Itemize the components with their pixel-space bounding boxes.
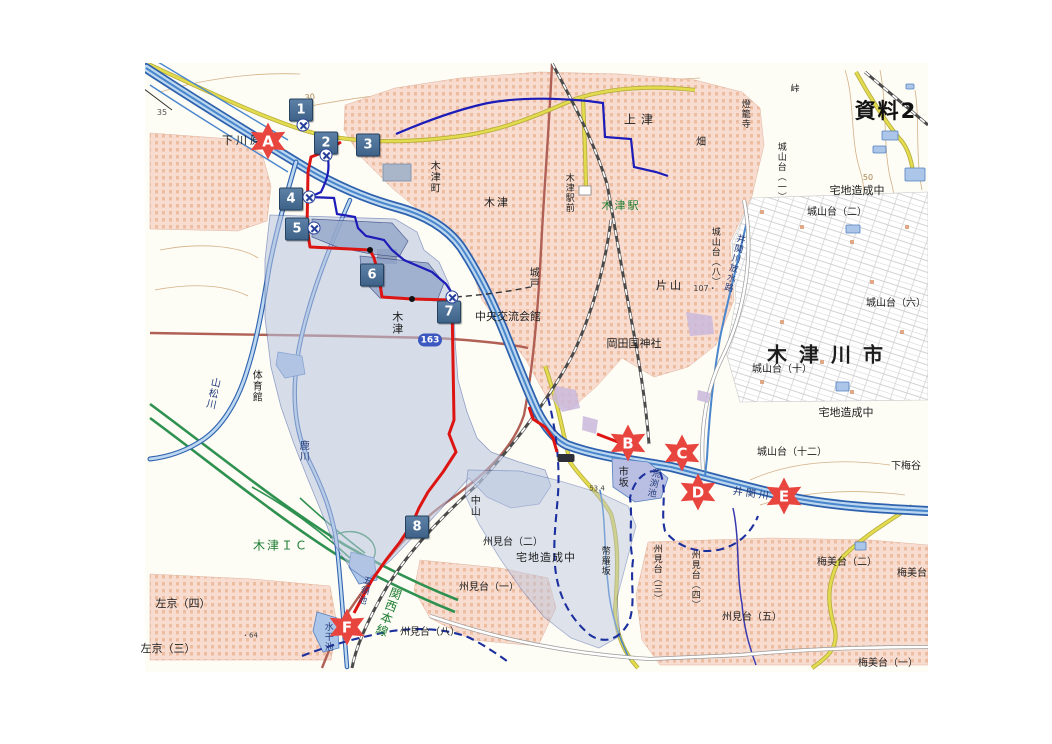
label-kunimidai-4: 州見台（四） <box>689 550 698 610</box>
point-marker-1[interactable]: 1 <box>289 99 313 122</box>
point-marker-7[interactable]: 7 <box>437 301 461 324</box>
label-elev-50: 50 <box>863 174 873 182</box>
label-shiroyamadai-8: 城山台（八） <box>709 227 718 287</box>
label-umemidai-e: 梅美台 <box>897 569 927 580</box>
label-kizu-ekimae: 木津駅前 <box>563 173 572 213</box>
label-takuchi-zosei-e: 宅地造成中 <box>819 407 874 419</box>
point-marker-5[interactable]: 5 <box>285 218 309 241</box>
label-kizu-center: 木津 <box>391 311 403 335</box>
document-tag: 資料2 <box>855 95 918 125</box>
label-kido: 城戸 <box>527 267 538 289</box>
label-okadakuni-jinja: 岡田国神社 <box>607 338 662 350</box>
label-shiroyamadai-6: 城山台（六） <box>866 299 926 310</box>
label-kizu-eki: 木津駅 <box>602 200 641 212</box>
label-elev-64: ・64 <box>242 632 258 639</box>
label-sakyo-4: 左京（四） <box>156 598 211 610</box>
label-takuchi-zosei-s: 宅地造成中 <box>516 552 576 564</box>
label-kunimidai-5: 州見台（五） <box>722 613 782 624</box>
label-kizu-ic: 木津ＩＣ <box>253 540 309 553</box>
point-marker-4[interactable]: 4 <box>279 188 303 211</box>
label-sakyo-3: 左京（三） <box>141 643 196 655</box>
map-page: 下川原上津畑燈籠寺峠木津町木津木津駅前木津駅城戸片山岡田国神社中央交流会館木津体… <box>0 0 1052 744</box>
label-kunimidai-1: 州見台（一） <box>459 583 519 594</box>
label-katayama: 片山 <box>656 280 684 292</box>
point-marker-6[interactable]: 6 <box>360 264 384 287</box>
label-toge: 峠 <box>790 85 799 94</box>
label-shimoumedani: 下梅谷 <box>891 462 921 473</box>
point-marker-8[interactable]: 8 <box>405 516 429 539</box>
label-kizucho: 木津町 <box>428 161 439 194</box>
label-toroji: 燈籠寺 <box>739 99 748 129</box>
point-marker-2[interactable]: 2 <box>314 132 338 155</box>
label-kunimidai-2: 州見台（二） <box>483 538 543 549</box>
label-elev-53: 53.4 <box>589 485 605 492</box>
label-shikagawa: 鹿川 <box>297 440 308 462</box>
label-umemidai-1: 梅美台（一） <box>858 659 918 670</box>
label-heirazaka: 幣羅坂 <box>599 546 608 576</box>
label-nakayama: 中山 <box>468 495 479 517</box>
label-taiikukan: 体育館 <box>250 370 261 403</box>
label-shiroyamadai-2: 城山台（二） <box>807 208 867 219</box>
label-kamitsu: 上津 <box>624 114 658 127</box>
label-umemidai-2: 梅美台（二） <box>817 558 877 569</box>
label-hata: 畑 <box>696 138 706 149</box>
label-kizu-north: 木津 <box>484 197 510 209</box>
label-kizugawa-shi: 木津川市 <box>767 345 895 366</box>
label-elev-107: 107・ <box>693 285 716 293</box>
label-chuo-koryu-kaikan: 中央交流会館 <box>475 311 541 323</box>
label-takuchi-zosei-ne: 宅地造成中 <box>830 185 885 197</box>
label-ichisaka: 市坂 <box>616 466 627 488</box>
point-marker-3[interactable]: 3 <box>356 134 380 157</box>
label-shiroyamadai-1: 城山台（一） <box>775 142 784 202</box>
label-kunimidai-8: 州見台（八） <box>400 628 460 639</box>
label-suikan-ike: 水干池 <box>322 622 331 652</box>
label-shiroyamadai-12: 城山台（十二） <box>757 448 827 459</box>
label-elev-35: 35 <box>157 109 167 117</box>
label-kunimidai-3: 州見台（三） <box>651 544 660 604</box>
